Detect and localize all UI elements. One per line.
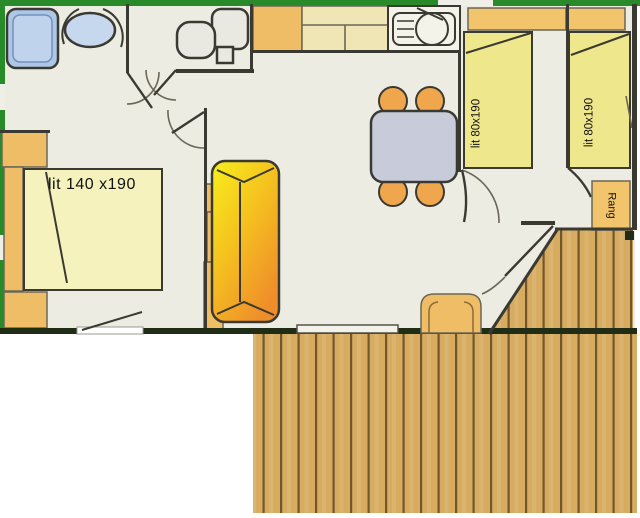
wall [566,4,569,168]
floor-plan-drawing [0,0,640,518]
kitchen-cabinet [253,6,302,51]
wall [176,69,254,73]
deck-terrace [253,334,637,513]
label-single-bed-right: lit 80x190 [584,78,597,168]
bedroom-cabinet [2,132,47,167]
sofa [212,161,279,322]
border-top [0,0,640,6]
sink-basin [416,13,448,45]
label-storage: Rang [605,161,618,251]
wall [632,4,637,230]
washbasin [65,13,115,47]
wall [458,50,461,172]
wall [521,221,555,225]
label-double-bed: lit 140 x190 [48,176,136,194]
bedroom-cabinet [4,292,47,328]
wall [204,108,207,329]
wall [0,130,50,133]
label-single-bed-left: lit 80x190 [471,79,484,169]
deck-post [625,231,634,240]
wall [126,4,129,73]
window-left-bath [0,84,5,110]
shower-tray-inner [13,15,52,62]
wall [253,50,460,53]
entry-chair [421,294,481,333]
toilet-bowl [177,22,215,58]
toilet-base [217,47,233,63]
wall [250,4,253,73]
wardrobe-shelf [468,8,625,30]
floor-plan: lit 140 x190 lit 80x190 lit 80x190 Rang [0,0,640,518]
dining-table [371,111,457,182]
bedroom-cabinet [4,167,23,291]
window-living [297,325,398,333]
toilet-tank [212,9,248,49]
